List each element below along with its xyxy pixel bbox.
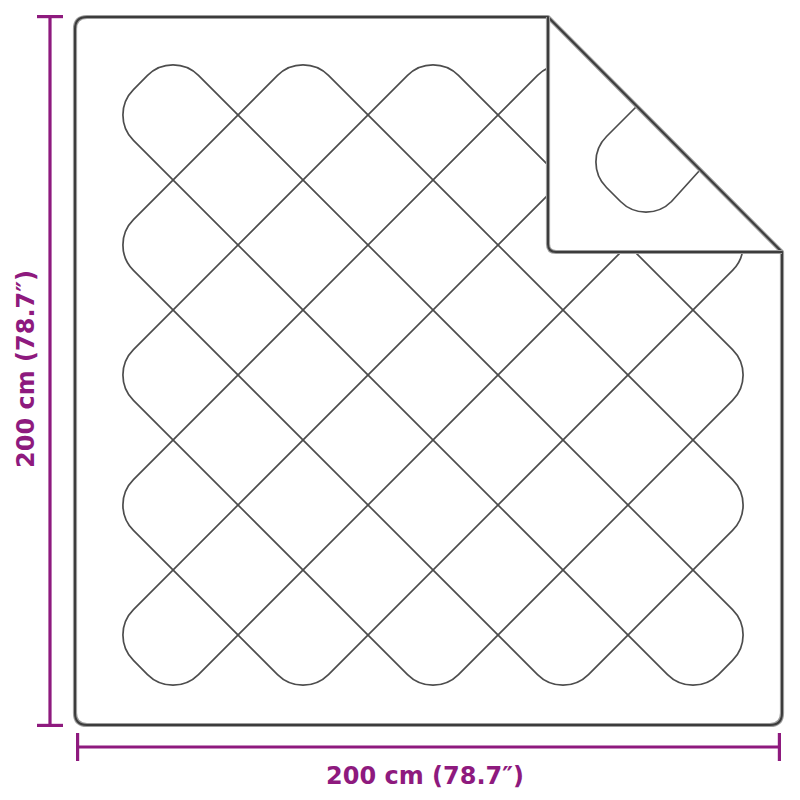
- width-label: 200 cm (78.7″): [225, 761, 625, 791]
- product-dimension-image: 200 cm (78.7″) 200 cm (78.7″): [0, 0, 800, 800]
- height-label: 200 cm (78.7″): [11, 169, 41, 569]
- blanket-front-face: [75, 17, 782, 725]
- blanket-dimension-diagram: [0, 0, 800, 800]
